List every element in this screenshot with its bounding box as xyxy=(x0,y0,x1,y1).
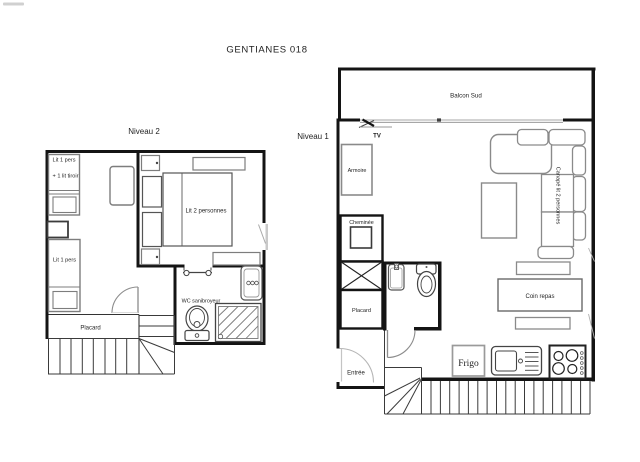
niveau-2-label: Niveau 2 xyxy=(128,127,160,136)
nightstand xyxy=(48,222,69,238)
coffee-table xyxy=(482,183,517,238)
balcony-label: Balcon Sud xyxy=(450,93,482,100)
single-bed-bottom-label: Lit 1 pers xyxy=(53,258,76,264)
bedroom-door-swing xyxy=(259,224,269,250)
toilet-icon xyxy=(185,306,209,341)
balcony-glazing xyxy=(359,120,563,128)
fireplace-label: Cheminée xyxy=(349,220,374,226)
niveau-1-label: Niveau 1 xyxy=(297,132,329,141)
bench xyxy=(213,253,260,266)
wardrobe-label: Armoire xyxy=(348,168,367,174)
bathroom-sink-icon xyxy=(389,264,405,291)
plan-niveau-2: Niveau 2 Lit 1 pers + 1 lit tiroir xyxy=(46,127,269,374)
dining-label: Coin repas xyxy=(525,294,554,300)
fireplace: Cheminée xyxy=(341,216,383,262)
wardrobe-small xyxy=(110,167,134,206)
closet-niveau2-label: Placard xyxy=(80,326,100,332)
plan-niveau-1: Niveau 1 Balcon Sud TV A xyxy=(297,68,595,415)
crossed-closet xyxy=(341,262,383,291)
bedroom-interior-door xyxy=(112,287,138,313)
dining-corner: Coin repas xyxy=(498,262,582,329)
single-bed-bottom: Lit 1 pers xyxy=(49,240,81,312)
corner-watermark xyxy=(3,3,24,6)
bench-bottom xyxy=(516,318,571,330)
plan-title: GENTIANES 018 xyxy=(226,45,307,56)
floorplan-canvas: GENTIANES 018 Niveau 2 Lit 1 pers xyxy=(0,0,640,462)
tv-label: TV xyxy=(373,134,381,140)
kitchen: Frigo xyxy=(453,346,586,379)
sofa-label: Canapé lit 2 personnes xyxy=(555,167,561,225)
shower-icon xyxy=(216,304,262,342)
closet-niveau1: Placard xyxy=(341,290,383,329)
kitchen-sink-icon xyxy=(492,347,542,376)
tv-icon xyxy=(360,120,392,128)
bathroom-door xyxy=(388,330,416,358)
closet-niveau1-label: Placard xyxy=(352,308,371,314)
bathroom xyxy=(383,262,442,358)
shelf xyxy=(193,158,245,171)
wc-label: WC sanibroyeur xyxy=(182,299,221,305)
staircase-niveau2 xyxy=(49,316,175,375)
wc-room: WC sanibroyeur xyxy=(182,266,262,342)
single-bed-top-label-2: + 1 lit tiroir xyxy=(53,174,79,180)
fridge-label: Frigo xyxy=(458,359,479,369)
double-bedroom: Lit 2 personnes xyxy=(142,156,261,266)
bench-top xyxy=(517,262,571,275)
single-bed-top-label-1: Lit 1 pers xyxy=(52,158,75,164)
washbasin-icon xyxy=(241,266,262,300)
wc-sliding-door xyxy=(183,268,212,276)
stove-icon xyxy=(550,346,586,379)
single-bed-top: Lit 1 pers + 1 lit tiroir xyxy=(49,155,80,216)
entrance-label: Entrée xyxy=(347,371,365,377)
entrance: Entrée xyxy=(340,349,374,383)
floorplan-drawing: GENTIANES 018 Niveau 2 Lit 1 pers xyxy=(0,0,640,462)
double-bed-label: Lit 2 personnes xyxy=(185,209,226,215)
bathroom-toilet-icon xyxy=(417,264,437,297)
